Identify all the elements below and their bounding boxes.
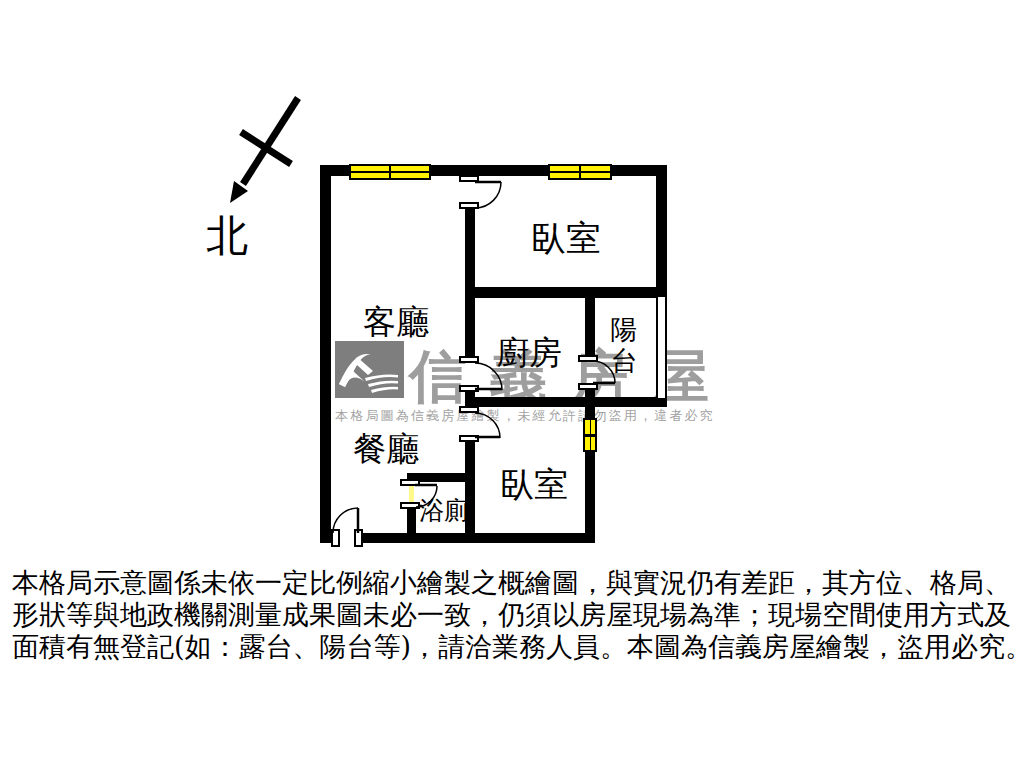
room-label-dining: 餐廳: [353, 427, 419, 472]
wall-divider-a: [465, 209, 475, 357]
room-label-bedroom-top: 臥室: [531, 215, 601, 262]
wall-balcony-divider-lower: [585, 390, 595, 407]
north-arrow-icon: [190, 85, 320, 215]
watermark-notice-text: 本格局圖為信義房屋繪製，未經允許請勿盜用，違者必究: [335, 407, 735, 425]
disclaimer-line-3: 面積有無登記(如：露台、陽台等)，請洽業務人員。本圖為信義房屋繪製，盜用必究。: [12, 631, 1016, 663]
wall-right-upper: [656, 165, 667, 298]
door-jamb: [459, 406, 479, 413]
door-jamb: [400, 479, 420, 486]
room-label-balcony: 陽台: [609, 314, 639, 376]
room-label-bedroom-bottom: 臥室: [500, 462, 568, 508]
door-jamb: [331, 529, 340, 547]
door-jamb: [578, 383, 598, 390]
disclaimer-line-2: 形狀等與地政機關測量成果圖未必一致，仍須以房屋現場為準；現場空間使用方式及: [12, 599, 1016, 631]
balcony-railing-window: [656, 297, 667, 398]
door-jamb: [459, 202, 479, 209]
door-jamb: [459, 356, 479, 363]
door-jamb: [459, 435, 479, 442]
sinyi-logo-icon: [335, 341, 404, 398]
window-mullion: [389, 166, 391, 178]
window-mullion: [590, 420, 591, 450]
disclaimer-line-1: 本格局示意圖係未依一定比例縮小繪製之概繪圖，與實況仍有差距，其方位、格局、: [12, 567, 1016, 599]
door-jamb: [459, 175, 479, 182]
room-label-bathroom: 浴廁: [419, 494, 469, 527]
wall-balcony-divider-upper: [585, 287, 595, 357]
floorplan-page: 信義房屋 本格局圖為信義房屋繪製，未經允許請勿盜用，違者必究: [0, 0, 1024, 768]
window-bedroom2: [583, 418, 597, 452]
window-top-left: [349, 164, 431, 180]
door-jamb: [459, 385, 479, 392]
wall-bedroom1-bottom: [465, 287, 667, 298]
wall-divider-b: [465, 392, 475, 407]
room-label-kitchen: 廚房: [496, 331, 562, 376]
wall-left: [320, 165, 331, 543]
disclaimer-text: 本格局示意圖係未依一定比例縮小繪製之概繪圖，與實況仍有差距，其方位、格局、 形狀…: [12, 567, 1016, 663]
room-label-living: 客廳: [363, 300, 429, 345]
window-mullion: [579, 166, 581, 178]
door-jamb: [578, 355, 598, 362]
north-label: 北: [206, 208, 248, 264]
door-jamb: [354, 529, 363, 547]
door-jamb: [400, 502, 420, 509]
window-top-right: [548, 164, 612, 180]
wall-kitchen-bottom: [465, 397, 667, 407]
